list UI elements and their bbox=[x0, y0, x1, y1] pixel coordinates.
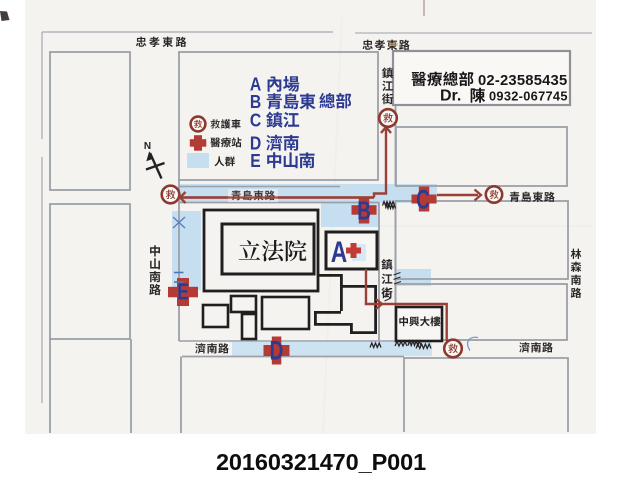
svg-text:C: C bbox=[250, 109, 261, 131]
svg-text:0932-067745: 0932-067745 bbox=[489, 89, 568, 104]
svg-text:E: E bbox=[250, 150, 260, 172]
svg-text:N: N bbox=[144, 141, 151, 152]
svg-text:02-23585435: 02-23585435 bbox=[478, 73, 567, 89]
svg-text:20160321470_P001: 20160321470_P001 bbox=[216, 449, 426, 475]
svg-text:Dr.: Dr. bbox=[440, 88, 461, 105]
svg-text:E: E bbox=[177, 280, 189, 305]
svg-text:D: D bbox=[270, 335, 284, 365]
svg-text:A: A bbox=[331, 235, 347, 269]
svg-text:B: B bbox=[357, 195, 371, 225]
svg-text:C: C bbox=[416, 184, 430, 214]
